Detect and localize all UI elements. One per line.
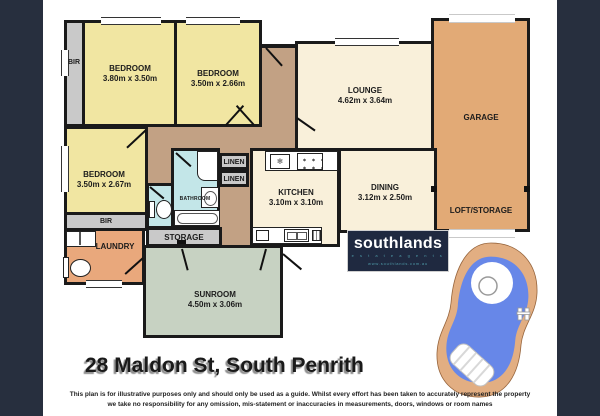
agency-logo-box: southlands e s t a t e a g e n t s www.s… [348, 231, 448, 271]
tub-divider [79, 232, 81, 245]
sink-basin [287, 232, 297, 240]
wall-nub [524, 186, 530, 192]
dishwasher-icon [256, 230, 269, 241]
room-label-bir-front: BIR [68, 58, 80, 67]
toilet-tank [149, 201, 155, 218]
room-label-sunroom: SUNROOM 4.50m x 3.06m [188, 290, 242, 311]
room-name: KITCHEN [269, 188, 323, 198]
room-garage [431, 18, 530, 232]
room-dims: 3.12m x 2.50m [358, 193, 412, 203]
drain-rack-icon [312, 230, 321, 241]
window [86, 280, 122, 288]
toilet-tank [63, 257, 69, 278]
room-name: SUNROOM [188, 290, 242, 300]
stove-icon [297, 153, 323, 170]
room-name: BEDROOM [191, 69, 245, 79]
wall-nub [431, 186, 437, 192]
room-label-linen-lower: LINEN [224, 175, 245, 184]
bathtub-icon [174, 210, 220, 226]
agency-website: www.southlands.com.au [368, 262, 428, 266]
toilet-icon [70, 259, 91, 277]
agency-tagline: e s t a t e a g e n t s [352, 254, 445, 258]
laundry-tub-icon [66, 231, 96, 247]
agency-logo-text: southlands [354, 236, 442, 252]
room-label-bedroom2: BEDROOM 3.50m x 2.66m [191, 69, 245, 90]
garage-door-opening [449, 229, 515, 238]
room-dims: 3.10m x 3.10m [269, 198, 323, 208]
room-dims: 3.50m x 2.66m [191, 79, 245, 89]
room-name: LOUNGE [338, 86, 392, 96]
room-label-laundry: LAUNDRY [96, 242, 135, 252]
disclaimer: This plan is for illustrative purposes o… [43, 390, 557, 410]
room-dims: 4.62m x 3.64m [338, 96, 392, 106]
room-label-garage: GARAGE [463, 113, 498, 123]
room-label-dining: DINING 3.12m x 2.50m [358, 183, 412, 204]
room-label-lounge: LOUNGE 4.62m x 3.64m [338, 86, 392, 107]
tub-inner [177, 213, 218, 224]
window [101, 17, 161, 25]
room-label-bathroom: BATHROOM [180, 196, 211, 203]
disclaimer-line1: This plan is for illustrative purposes o… [43, 390, 557, 400]
disclaimer-line2: we take no responsibility for any omissi… [43, 400, 557, 410]
window [186, 17, 240, 25]
room-dims: 3.50m x 2.67m [77, 180, 131, 190]
room-dims: 4.50m x 3.06m [188, 300, 242, 310]
fridge-icon: ❄ [270, 154, 290, 169]
room-dims: 3.80m x 3.50m [103, 74, 157, 84]
room-label-bedroom3: BEDROOM 3.50m x 2.67m [77, 170, 131, 191]
pool [433, 239, 551, 402]
room-label-storage: STORAGE [164, 233, 203, 243]
window [61, 146, 69, 192]
room-name: BEDROOM [77, 170, 131, 180]
room-label-bir-rear: BIR [100, 217, 112, 226]
room-name: DINING [358, 183, 412, 193]
floorplan-image: ❄ BEDROOM 3.80m x 3.50m BEDROOM 3.50m x … [0, 0, 600, 416]
room-label-kitchen: KITCHEN 3.10m x 3.10m [269, 188, 323, 209]
window [335, 38, 399, 46]
toilet-icon [156, 200, 172, 219]
page-title: 28 Maldon St, South Penrith [85, 354, 364, 378]
spa-icon [471, 262, 513, 304]
sink-basin [297, 232, 307, 240]
entry-hall [262, 44, 298, 150]
room-label-linen-upper: LINEN [224, 158, 245, 167]
garage-door-opening [449, 14, 515, 23]
room-name: BEDROOM [103, 64, 157, 74]
room-label-loft-storage: LOFT/STORAGE [450, 206, 513, 216]
room-label-bedroom1: BEDROOM 3.80m x 3.50m [103, 64, 157, 85]
shower-icon [197, 151, 218, 181]
sink-icon [284, 229, 309, 242]
